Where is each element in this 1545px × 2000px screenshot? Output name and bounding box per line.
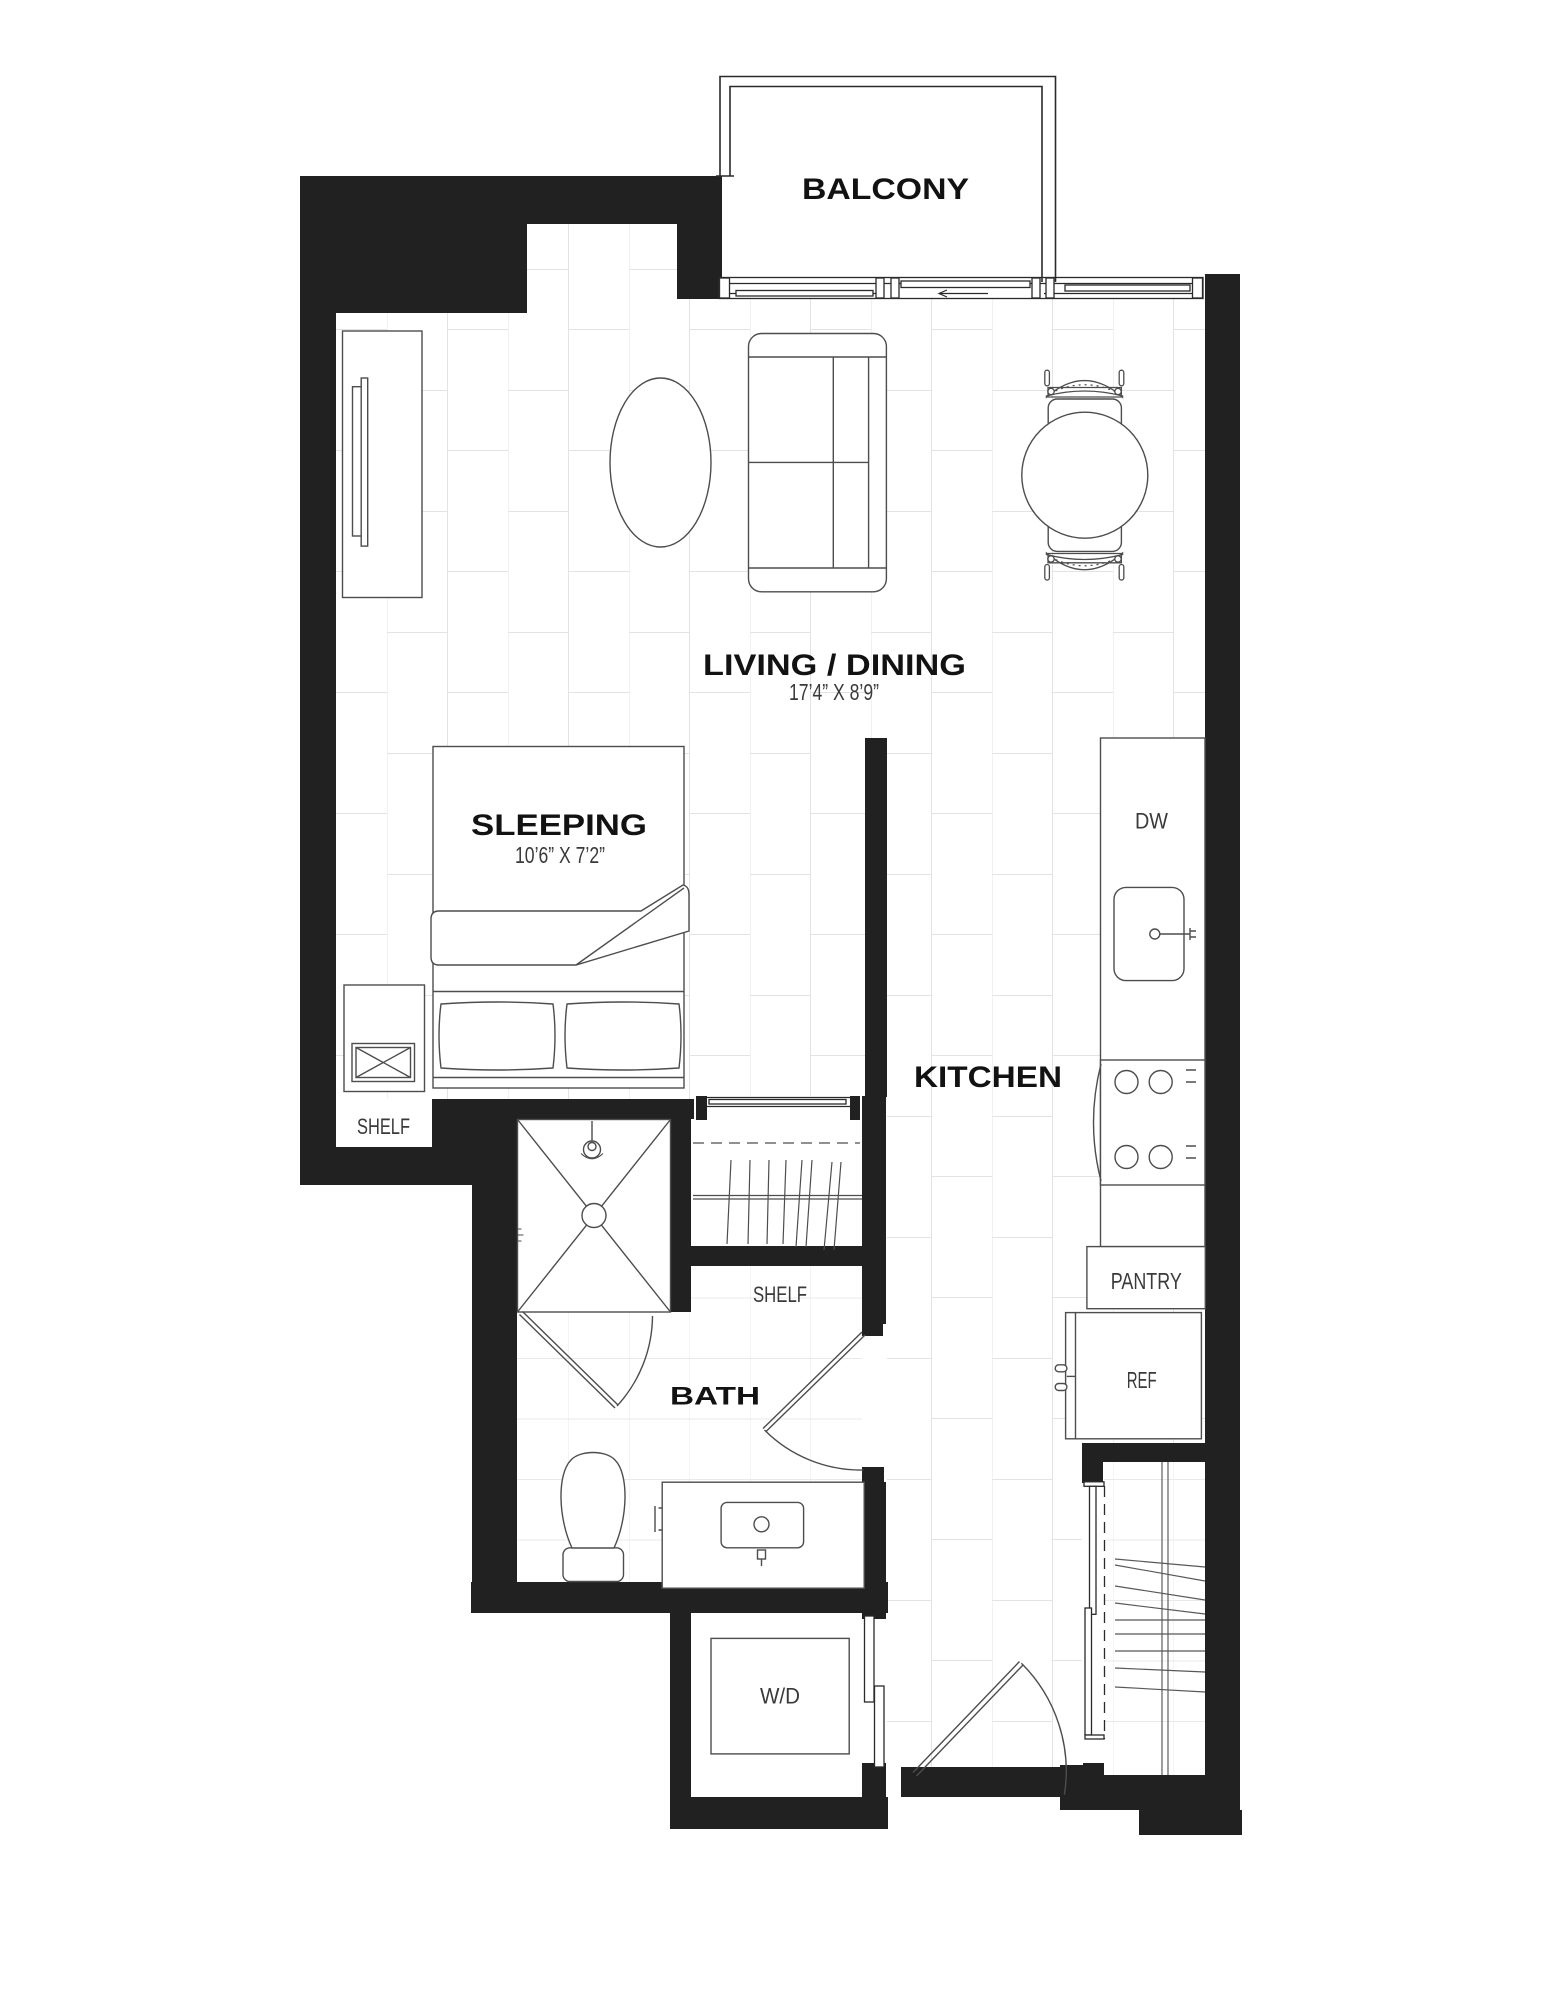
svg-text:LIVING / DINING: LIVING / DINING bbox=[703, 649, 966, 682]
svg-text:DW: DW bbox=[1135, 809, 1168, 834]
svg-text:W/D: W/D bbox=[760, 1684, 800, 1709]
svg-text:17’4” X 8’9”: 17’4” X 8’9” bbox=[789, 679, 879, 705]
svg-text:REF: REF bbox=[1127, 1367, 1157, 1393]
svg-text:SHELF: SHELF bbox=[357, 1114, 410, 1139]
svg-text:SHELF: SHELF bbox=[753, 1282, 807, 1307]
svg-text:KITCHEN: KITCHEN bbox=[914, 1061, 1062, 1094]
svg-text:SLEEPING: SLEEPING bbox=[471, 809, 647, 842]
svg-text:BALCONY: BALCONY bbox=[802, 173, 969, 206]
svg-text:BATH: BATH bbox=[670, 1383, 760, 1411]
svg-text:PANTRY: PANTRY bbox=[1111, 1268, 1182, 1294]
svg-text:10’6” X 7’2”: 10’6” X 7’2” bbox=[515, 842, 605, 868]
